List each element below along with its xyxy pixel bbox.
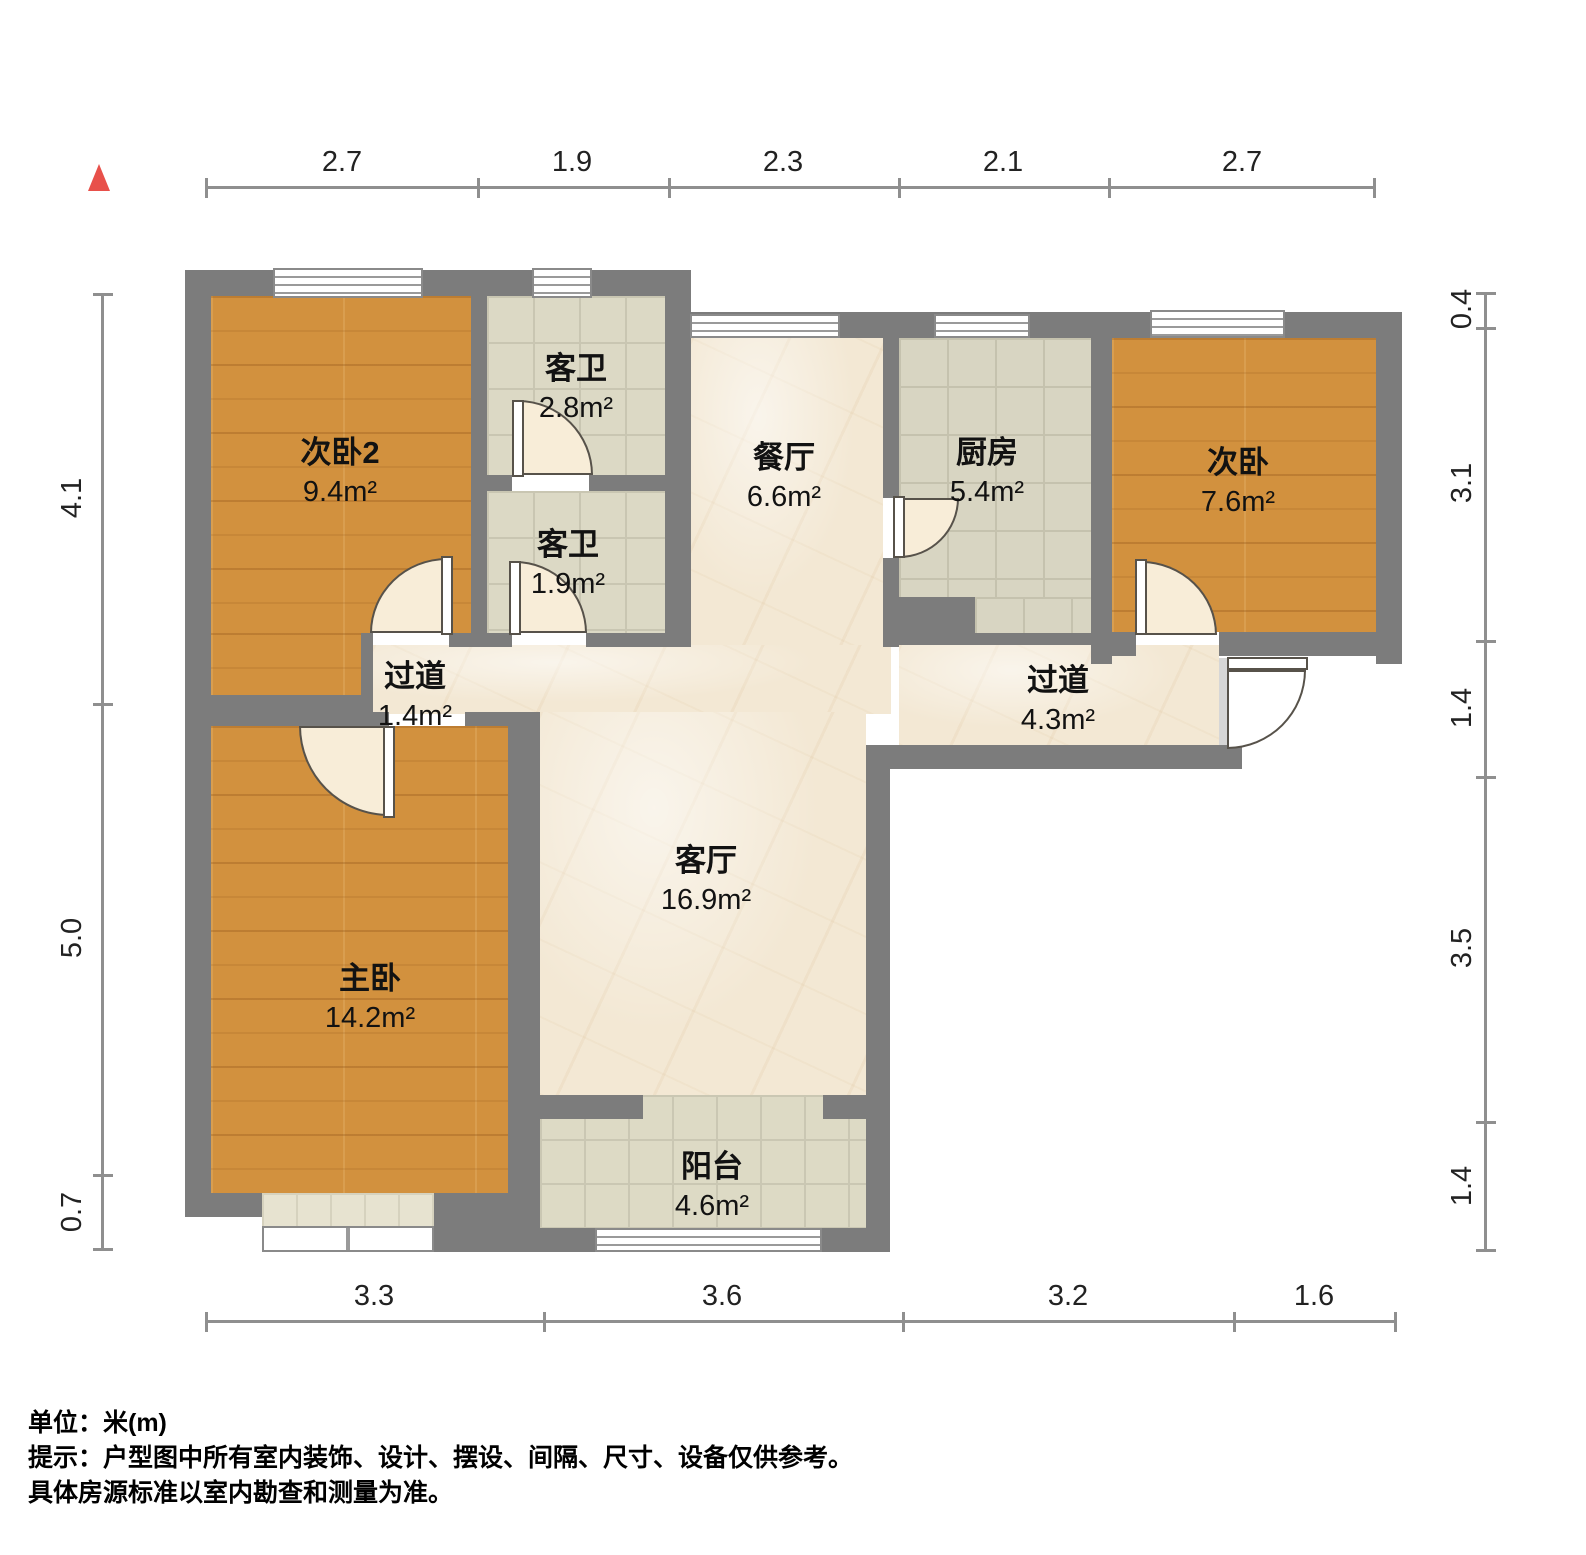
room-area: 6.6m² — [747, 479, 821, 515]
wall-bd2ext-bottom — [185, 695, 373, 712]
door-leaf-bath2 — [509, 561, 521, 635]
dim-line-left — [101, 293, 104, 1251]
dim-label-right: 1.4 — [1446, 673, 1478, 743]
dim-label-right: 3.5 — [1446, 913, 1478, 983]
room-area: 16.9m² — [661, 882, 751, 918]
room-area: 2.8m² — [539, 390, 613, 426]
dim-tick — [668, 178, 671, 198]
wall-bath-divider-b — [589, 475, 665, 491]
room-name: 餐厅 — [747, 437, 821, 479]
wall-master-living — [508, 712, 540, 1095]
wall-master-top-a — [185, 712, 389, 726]
room-label-hallway1: 过道 1.4m² — [378, 656, 452, 734]
wall-kitchen-bedroom — [1091, 338, 1112, 664]
dim-label-left: 4.1 — [56, 463, 88, 533]
dim-tick — [1233, 1312, 1236, 1332]
window-dining — [690, 314, 840, 338]
dim-tick — [902, 1312, 905, 1332]
room-area: 7.6m² — [1201, 484, 1275, 520]
door-leaf-bath1 — [512, 400, 524, 477]
dim-tick — [1476, 776, 1496, 779]
dim-label-bottom: 1.6 — [1294, 1280, 1334, 1313]
floor-bedroom2-ext — [211, 633, 361, 695]
wall-bd2-bath — [471, 296, 487, 647]
room-label-hallway2: 过道 4.3m² — [1021, 660, 1095, 738]
wall-bedroom-bottom-a — [1112, 632, 1136, 656]
room-label-bath1: 客卫 2.8m² — [539, 348, 613, 426]
dim-label-top: 1.9 — [552, 146, 592, 179]
room-area: 5.4m² — [950, 474, 1024, 510]
window-bath1 — [532, 268, 592, 298]
wall-right — [1376, 312, 1402, 664]
room-name: 客卫 — [539, 348, 613, 390]
room-name: 主卧 — [325, 958, 415, 1000]
dim-line-top — [205, 186, 1376, 189]
door-leaf-entry — [1227, 657, 1308, 670]
dim-tick — [1476, 327, 1496, 330]
dim-tick — [93, 1248, 113, 1251]
room-name: 次卧2 — [300, 432, 379, 474]
dim-label-top: 2.7 — [322, 146, 362, 179]
door-leaf-master — [383, 726, 395, 818]
dim-label-left: 0.7 — [56, 1177, 88, 1247]
wall-living-right — [866, 745, 890, 1095]
dim-tick — [93, 1174, 113, 1177]
room-name: 客厅 — [661, 840, 751, 882]
room-name: 客卫 — [531, 524, 605, 566]
footnotes: 单位：米(m) 提示：户型图中所有室内装饰、设计、摆设、间隔、尺寸、设备仅供参考… — [28, 1406, 853, 1511]
dim-label-right: 0.4 — [1446, 274, 1478, 344]
dim-label-bottom: 3.3 — [354, 1280, 394, 1313]
room-label-dining: 餐厅 6.6m² — [747, 437, 821, 515]
window-bedroom — [1150, 310, 1285, 338]
room-area: 14.2m² — [325, 1000, 415, 1036]
dim-tick — [1476, 1249, 1496, 1252]
dim-label-top: 2.3 — [763, 146, 803, 179]
wall-dining-kitchen-b — [883, 558, 899, 647]
room-area: 4.3m² — [1021, 702, 1095, 738]
dim-label-bottom: 3.6 — [702, 1280, 742, 1313]
wall-bay-left — [185, 1193, 262, 1217]
door-leaf-bedroom2 — [441, 556, 453, 635]
dim-tick — [93, 293, 113, 296]
room-name: 次卧 — [1201, 442, 1275, 484]
wall-bath-dining — [665, 296, 691, 647]
room-label-bedroom: 次卧 7.6m² — [1201, 442, 1275, 520]
wall-living-balcony-a — [540, 1095, 643, 1119]
room-name: 过道 — [1021, 660, 1095, 702]
window-kitchen — [934, 314, 1030, 338]
dim-tick — [1373, 178, 1376, 198]
room-name: 阳台 — [675, 1146, 749, 1188]
floor-plan: 次卧2 9.4m² 客卫 2.8m² 客卫 1.9m² 餐厅 6.6m² 厨房 … — [0, 0, 1586, 1555]
wall-band-c — [586, 633, 691, 647]
dim-tick — [543, 1312, 546, 1332]
room-label-living: 客厅 16.9m² — [661, 840, 751, 918]
tip-note-2: 具体房源标准以室内勘查和测量为准。 — [28, 1476, 853, 1511]
wall-bedroom-bottom-b — [1219, 632, 1402, 656]
dim-tick — [477, 178, 480, 198]
dim-label-top: 2.7 — [1222, 146, 1262, 179]
dim-label-left: 5.0 — [56, 903, 88, 973]
dim-label-bottom: 3.2 — [1048, 1280, 1088, 1313]
wall-living-balcony-b — [823, 1095, 866, 1119]
room-label-bedroom2: 次卧2 9.4m² — [300, 432, 379, 510]
dim-tick — [898, 178, 901, 198]
floor-bay-window — [262, 1193, 434, 1226]
dim-tick — [1394, 1312, 1397, 1332]
room-name: 厨房 — [950, 432, 1024, 474]
room-label-kitchen: 厨房 5.4m² — [950, 432, 1024, 510]
unit-note: 单位：米(m) — [28, 1406, 853, 1441]
wall-hallway2-bottom — [890, 745, 1242, 769]
room-name: 过道 — [378, 656, 452, 698]
floor-kitchen-ext — [975, 597, 1091, 633]
dim-tick — [1108, 178, 1111, 198]
dim-line-right — [1484, 292, 1487, 1252]
door-leaf-bedroom — [1135, 559, 1147, 635]
north-arrow-icon — [88, 164, 110, 191]
dim-tick — [1476, 640, 1496, 643]
wall-bay-right — [434, 1193, 540, 1252]
wall-left — [185, 270, 211, 1217]
dim-tick — [1476, 292, 1496, 295]
dim-tick — [205, 1312, 208, 1332]
room-label-master: 主卧 14.2m² — [325, 958, 415, 1036]
dim-label-right: 3.1 — [1446, 448, 1478, 518]
room-label-balcony: 阳台 4.6m² — [675, 1146, 749, 1224]
dim-label-right: 1.4 — [1446, 1151, 1478, 1221]
wall-kitchen-bottom-b — [975, 633, 1091, 645]
tip-note-1: 提示：户型图中所有室内装饰、设计、摆设、间隔、尺寸、设备仅供参考。 — [28, 1441, 853, 1476]
window-balcony — [595, 1228, 822, 1252]
wall-dining-kitchen-a — [883, 338, 899, 498]
wall-kitchen-bottom-a — [899, 597, 975, 645]
wall-top-high — [185, 270, 691, 296]
wall-bath-divider-a — [487, 475, 512, 491]
wall-balcony-sill-b — [822, 1228, 890, 1252]
dim-label-top: 2.1 — [983, 146, 1023, 179]
room-label-bath2: 客卫 1.9m² — [531, 524, 605, 602]
window-bay — [262, 1226, 434, 1252]
room-area: 1.9m² — [531, 566, 605, 602]
wall-band-b — [449, 633, 512, 647]
room-area: 1.4m² — [378, 698, 452, 734]
door-arc-entry — [1227, 670, 1306, 749]
window-bedroom2 — [273, 268, 423, 298]
room-area: 9.4m² — [300, 474, 379, 510]
dim-line-bottom — [205, 1320, 1397, 1323]
dim-tick — [205, 178, 208, 198]
room-area: 4.6m² — [675, 1188, 749, 1224]
door-leaf-kitchen — [893, 496, 905, 558]
dim-tick — [1476, 1121, 1496, 1124]
dim-tick — [93, 703, 113, 706]
